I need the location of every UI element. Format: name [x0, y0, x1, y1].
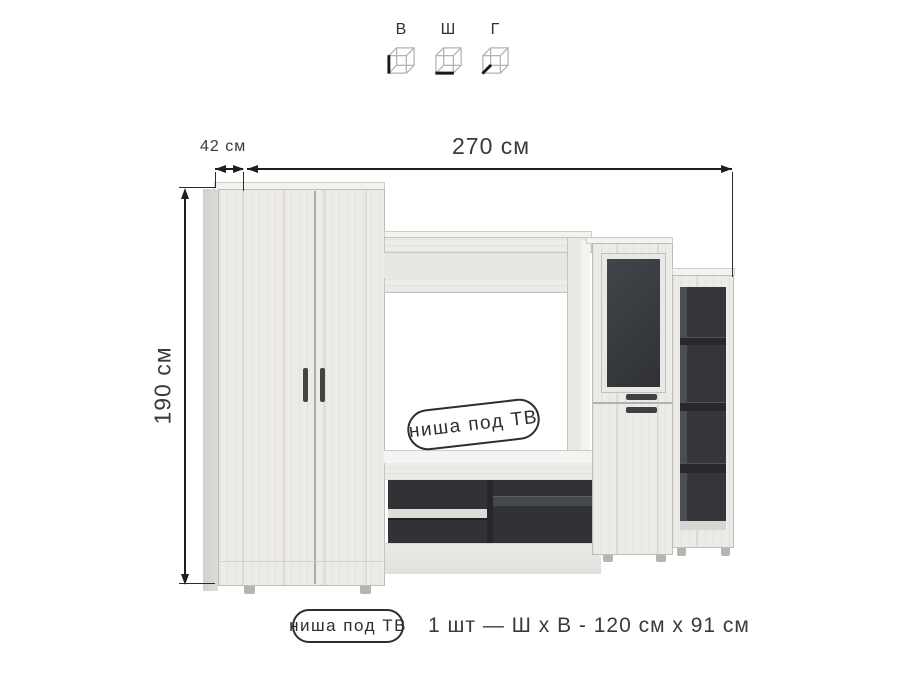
tv-niche-badge-label: ниша под ТВ: [408, 406, 539, 443]
legend-item-width: Ш: [432, 21, 465, 79]
extension-line: [215, 172, 216, 187]
lower-door-handle: [626, 407, 657, 413]
arrowhead-icon: [721, 165, 732, 173]
depth-dimension-label: 42 см: [200, 138, 246, 156]
tall-cabinet-door-gap: [593, 402, 672, 404]
tv-stand-right-shelf: [493, 496, 596, 506]
open-unit-shelf: [680, 463, 726, 473]
arrowhead-icon: [215, 165, 226, 173]
wardrobe-foot: [360, 586, 371, 594]
width-dimension-line: [247, 168, 732, 170]
arrowhead-icon: [247, 165, 258, 173]
wardrobe-door-gap: [314, 191, 316, 584]
tall-cabinet-side-sliver: [581, 241, 590, 462]
legend-item-depth: Г: [479, 21, 512, 79]
open-unit-shelf: [680, 337, 726, 345]
niche-shelf-surface: [384, 253, 567, 278]
wardrobe-bottom-seam: [220, 561, 383, 562]
depth-letter: Г: [491, 21, 501, 39]
extension-line: [179, 583, 215, 584]
tall-cabinet-foot: [656, 555, 666, 562]
wardrobe-right-handle: [320, 368, 325, 402]
wardrobe-left-handle: [303, 368, 308, 402]
height-letter: В: [396, 21, 408, 39]
wardrobe-front: [218, 189, 385, 586]
width-dimension-label: 270 см: [452, 133, 530, 160]
height-dimension-label: 190 см: [150, 341, 177, 431]
size-legend: В Ш Г: [385, 21, 512, 79]
wardrobe-side-panel: [203, 189, 218, 591]
cube-depth-icon: [479, 42, 512, 79]
cube-width-icon: [432, 42, 465, 79]
arrowhead-icon: [181, 188, 189, 199]
niche-shelf-front: [384, 278, 567, 293]
niche-right-wall: [567, 238, 582, 462]
height-dimension-line: [184, 191, 186, 575]
extension-line: [732, 172, 733, 277]
extension-line: [243, 172, 244, 191]
tv-stand-base: [384, 543, 601, 574]
open-unit-shelf: [680, 402, 726, 411]
legend-item-height: В: [385, 21, 418, 79]
open-unit-foot: [677, 548, 686, 556]
glass-door-panel: [607, 259, 660, 387]
cube-height-icon: [385, 42, 418, 79]
open-unit-bottom-board: [680, 521, 726, 530]
furniture-drawing: В Ш Г: [0, 0, 900, 675]
bridge-panel: [384, 237, 592, 253]
caption-badge-label: ниша под ТВ: [289, 616, 407, 636]
open-unit-foot: [721, 548, 730, 556]
caption-text: 1 шт — Ш х В - 120 см х 91 см: [428, 614, 750, 638]
tv-stand-top-edge: [384, 463, 600, 480]
tv-stand-top-surface: [384, 450, 600, 464]
tv-stand-left-shelf: [388, 509, 487, 518]
tv-niche-badge: ниша под ТВ: [405, 397, 542, 453]
width-letter: Ш: [441, 21, 457, 39]
tall-cabinet-foot: [603, 555, 613, 562]
glass-door-handle: [626, 394, 657, 400]
extension-line: [179, 187, 216, 188]
tv-stand-divider: [487, 480, 493, 543]
wardrobe-foot: [244, 586, 255, 594]
caption-row: ниша под ТВ 1 шт — Ш х В - 120 см х 91 с…: [292, 609, 750, 643]
caption-badge: ниша под ТВ: [292, 609, 404, 643]
